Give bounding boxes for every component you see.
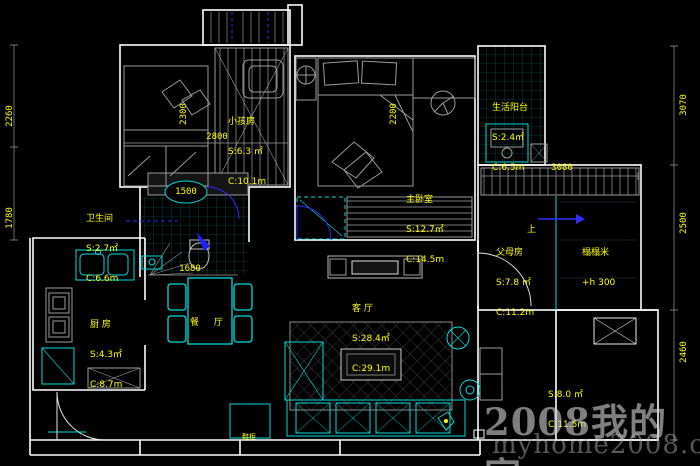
dim-corridor: 1680 (179, 264, 201, 274)
dim-right-top: 3070 (679, 94, 689, 116)
dim-master-height: 2200 (389, 103, 399, 125)
room-label-bottom-right: S:8.0 ㎡ C:11.5m (548, 370, 586, 440)
room-note: +h 300 (582, 278, 615, 288)
room-label-living: 客 厅 S:28.4㎡ C:29.1m (352, 284, 390, 384)
stair-up-label: 上 (527, 205, 536, 245)
room-name: 主卧室 (406, 195, 444, 205)
room-name: 厨 房 (90, 320, 122, 330)
room-area: S:12.7㎡ (406, 225, 444, 235)
room-circumference: C:10.1m (228, 177, 266, 187)
dim-left-top: 2260 (5, 105, 15, 127)
dim-right-bottom: 2460 (679, 341, 689, 363)
room-circumference: C:6.6m (86, 274, 118, 284)
room-area: S:2.4㎡ (492, 133, 528, 143)
room-name: 父母房 (496, 248, 534, 258)
dim-left-mid: 1780 (5, 207, 15, 229)
room-label-kids: 小孩房 S:6.3 ㎡ C:10.1m (228, 97, 266, 197)
room-name: 餐 厅 (190, 318, 229, 328)
dim-kids-height: 2300 (179, 103, 189, 125)
room-label-shoe-cabinet: 鞋柜 (242, 417, 256, 449)
room-label-master: 主卧室 S:12.7㎡ C:14.5m (406, 175, 444, 275)
room-circumference: C:11.2m (496, 308, 534, 318)
room-name: 榻榻米 (582, 248, 615, 258)
room-circumference: C:14.5m (406, 255, 444, 265)
room-label-dining: 餐 厅 (190, 298, 229, 338)
room-area: S:4.3㎡ (90, 350, 122, 360)
dim-parents-width: 3080 (551, 163, 573, 173)
room-label-tatami: 榻榻米 +h 300 (582, 228, 615, 298)
dim-kids-width: 2800 (206, 132, 228, 142)
floor-plan-canvas: 小孩房 S:6.3 ㎡ C:10.1m 主卧室 S:12.7㎡ C:14.5m … (0, 0, 700, 466)
room-area: S:28.4㎡ (352, 334, 390, 344)
room-area: S:7.8 ㎡ (496, 278, 534, 288)
room-label-balcony: 生活阳台 S:2.4㎡ C:6.5m (492, 83, 528, 183)
room-name: 生活阳台 (492, 103, 528, 113)
room-area: S:8.0 ㎡ (548, 390, 586, 400)
bay-window (211, 12, 283, 43)
room-name: 小孩房 (228, 117, 266, 127)
room-circumference: C:6.5m (492, 163, 528, 173)
cabinet-name: 鞋柜 (242, 433, 256, 441)
room-label-bathroom: 卫生间 S:2.7㎡ C:6.6m (86, 194, 118, 294)
room-area: S:2.7㎡ (86, 244, 118, 254)
room-circumference: C:8.7m (90, 380, 122, 390)
room-circumference: C:29.1m (352, 364, 390, 374)
dim-right-mid: 2500 (679, 212, 689, 234)
room-name: 卫生间 (86, 214, 118, 224)
room-area: S:6.3 ㎡ (228, 147, 266, 157)
room-label-kitchen: 厨 房 S:4.3㎡ C:8.7m (90, 300, 122, 400)
room-name: 客 厅 (352, 304, 390, 314)
room-circumference: C:11.5m (548, 420, 586, 430)
dim-hall-oval: 1500 (175, 187, 197, 197)
